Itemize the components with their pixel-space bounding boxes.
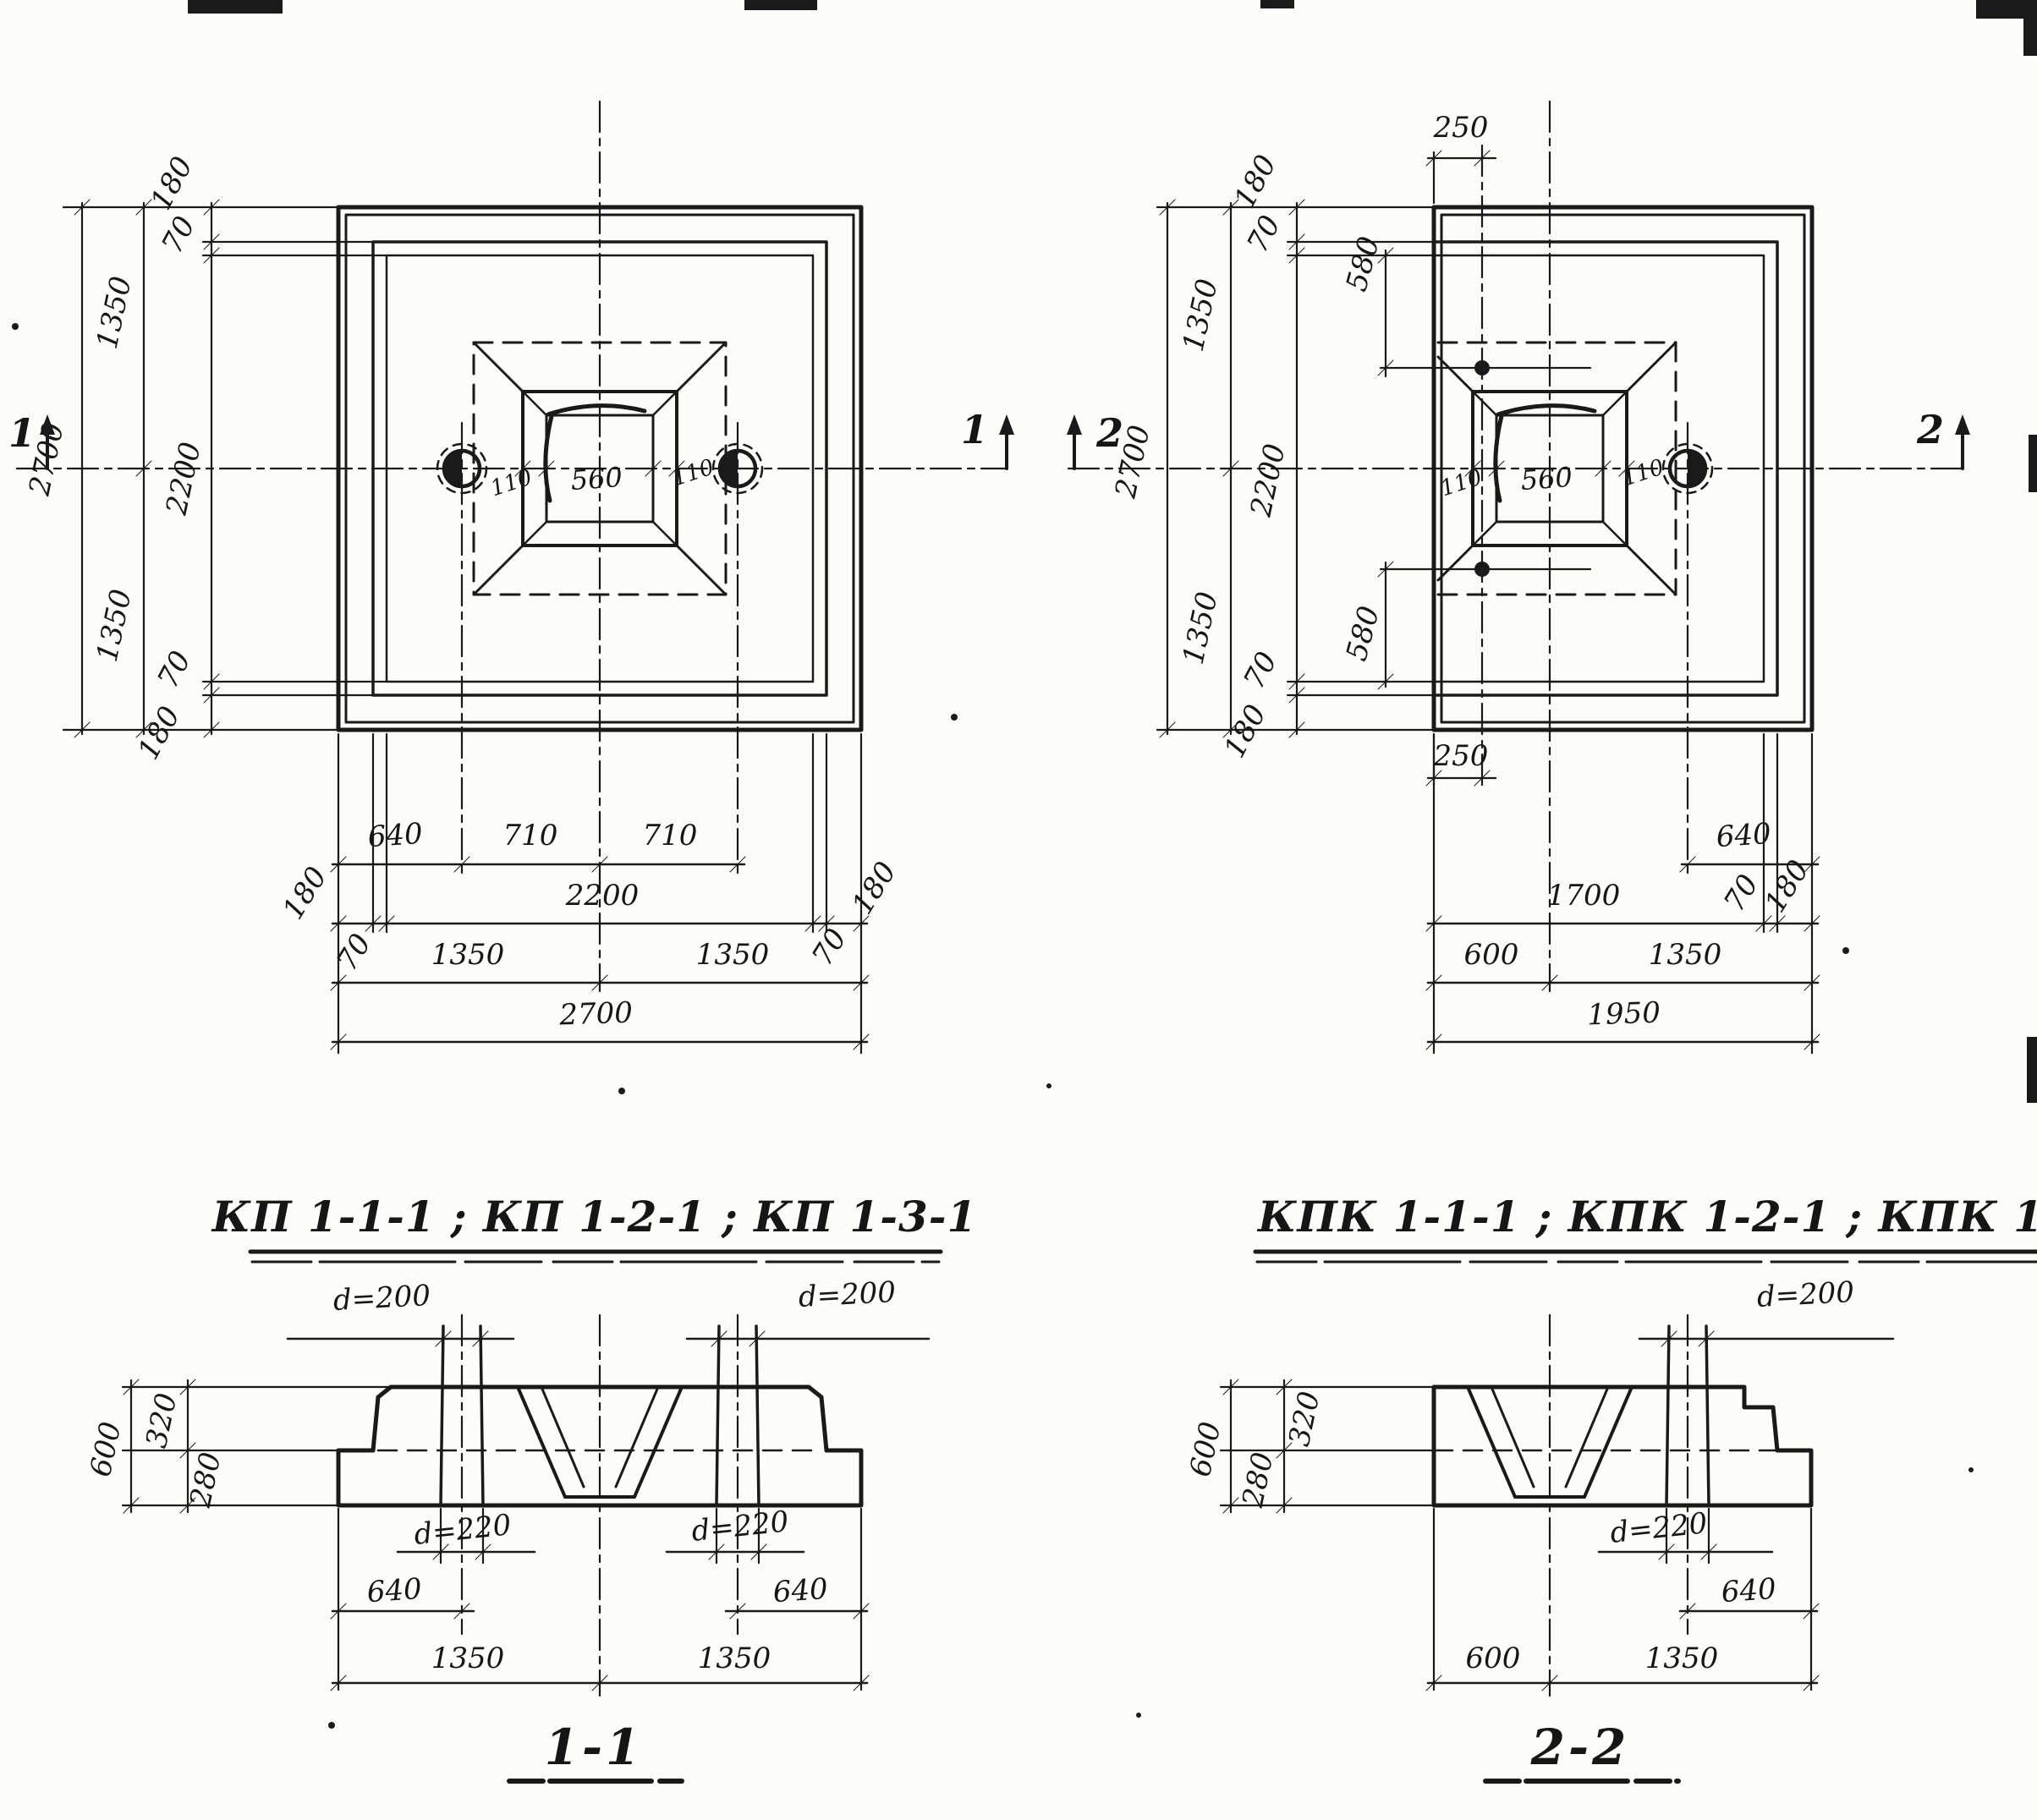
dim-label: 180 [144,151,200,216]
dim-label: 1350 [1177,589,1225,667]
section-mark: 1 [8,410,36,456]
section-1-title: 1-1 [509,1719,682,1781]
dim-label: 560 [569,461,623,496]
dim-label: d=220 [689,1505,790,1549]
dim-label: 600 [1183,1419,1228,1480]
dim-label: 70 [155,211,202,259]
section-mark: 2 [1095,410,1123,456]
dim-label: 320 [1282,1389,1327,1450]
dim-label: 70 [1240,210,1288,258]
scan-speck [1136,1713,1141,1718]
dim-label: 1950 [1587,996,1661,1033]
dim-label: 1350 [1177,276,1225,354]
dim-label: 1350 [696,938,770,972]
dim-label: 180 [846,856,903,920]
dim-label: 250 [1433,111,1489,145]
dim-label: 70 [151,645,198,693]
left-plan-dimensions: 2700 1350 1350 2200 180 70 70 180 560 11… [22,151,903,1053]
dim-label: 320 [140,1390,184,1451]
right-plan-dimensions: 250 580 2700 1350 1350 2200 180 70 70 18… [1108,111,1820,1053]
dim-label: 1350 [1649,938,1722,972]
dim-label: 640 [366,817,424,854]
section-2-title: 2-2 [1485,1719,1678,1781]
dim-label: 710 [503,819,558,852]
dim-label: 600 [1466,1642,1521,1675]
scan-speck [951,714,958,721]
left-plan-section-marks: 1 1 [8,407,1014,469]
dim-label: 2700 [558,996,634,1033]
dim-label: d=200 [1756,1275,1855,1314]
scan-artifact [2027,1037,2037,1103]
dim-label: 640 [1720,1572,1777,1609]
dim-label: 180 [1227,150,1283,214]
section-title: 1-1 [545,1719,644,1776]
scan-artifact [188,0,283,14]
dim-label: 2200 [565,879,640,913]
scan-speck [328,1722,335,1729]
left-plan: 2700 1350 1350 2200 180 70 70 180 560 11… [8,101,1014,1262]
section-1-dimensions: d=200 d=200 d=220 d=220 600 320 280 640 … [84,1275,929,1691]
dim-label: 1700 [1547,879,1621,913]
scan-artifact [2029,435,2037,492]
dim-label: 580 [1340,603,1386,665]
dim-label: 2200 [159,439,207,518]
dim-label: 1350 [1645,1642,1719,1675]
scan-speck [1046,1083,1051,1088]
right-plan: 250 580 2700 1350 1350 2200 180 70 70 18… [1067,101,2037,1262]
dim-label: 640 [365,1572,423,1609]
right-plan-title: КПК 1-1-1 ; КПК 1-2-1 ; КПК 1-3-1 [1255,1192,2037,1262]
dim-label: 600 [1464,938,1519,972]
section-2: d=200 d=220 600 320 280 640 600 1350 2-2 [1183,1275,1893,1781]
dim-label: 640 [1715,817,1772,854]
dim-label: 180 [277,861,334,925]
dim-label: 1350 [698,1642,771,1675]
dim-label: 2200 [1244,441,1292,520]
dim-label: 70 [1717,869,1765,918]
dim-label: 560 [1519,461,1573,496]
dim-label: 70 [1237,646,1284,694]
dim-label: 710 [643,819,698,852]
dim-label: 70 [330,928,378,977]
dim-label: 110 [487,464,535,502]
section-arrow-icon [1955,414,1970,435]
section-mark: 1 [961,407,988,452]
scan-artifact [1260,0,1294,8]
foundation-drawing: 2700 1350 1350 2200 180 70 70 180 560 11… [0,0,2037,1820]
dim-label: 1350 [91,273,139,352]
dim-label: 180 [1217,699,1273,764]
dim-label: 280 [184,1450,228,1511]
dim-label: 280 [1236,1450,1281,1511]
dim-label: d=220 [1608,1506,1709,1550]
dim-label: 640 [771,1572,829,1609]
section-2-dimensions: d=200 d=220 600 320 280 640 600 1350 [1183,1275,1893,1691]
plan-title: КПК 1-1-1 ; КПК 1-2-1 ; КПК 1-3-1 [1256,1192,2037,1242]
scan-speck [12,323,19,330]
section-arrow-icon [999,414,1014,435]
section-1: d=200 d=200 d=220 d=220 600 320 280 640 … [84,1275,929,1781]
dim-label: 600 [84,1419,129,1480]
plan-title: КП 1-1-1 ; КП 1-2-1 ; КП 1-3-1 [211,1192,978,1242]
section-arrow-icon [1067,414,1082,435]
dim-label: 1350 [431,1642,505,1675]
dim-label: 1350 [431,938,505,972]
dim-label: 250 [1433,739,1489,773]
left-plan-title: КП 1-1-1 ; КП 1-2-1 ; КП 1-3-1 [211,1192,978,1262]
dim-label: d=200 [332,1279,431,1318]
scan-artifact [744,0,817,10]
scan-speck [618,1088,625,1094]
dim-label: 180 [131,701,187,765]
section-mark: 2 [1916,407,1944,452]
scan-artifact [2023,12,2037,56]
drawing-sheet: 2700 1350 1350 2200 180 70 70 180 560 11… [0,0,2037,1820]
scan-speck [1968,1467,1974,1472]
dim-label: d=200 [798,1275,897,1314]
scan-speck [1842,947,1849,954]
section-title: 2-2 [1530,1719,1630,1776]
dim-label: 110 [1437,464,1485,502]
dim-label: 1350 [91,586,139,665]
dim-label: d=220 [412,1508,513,1552]
